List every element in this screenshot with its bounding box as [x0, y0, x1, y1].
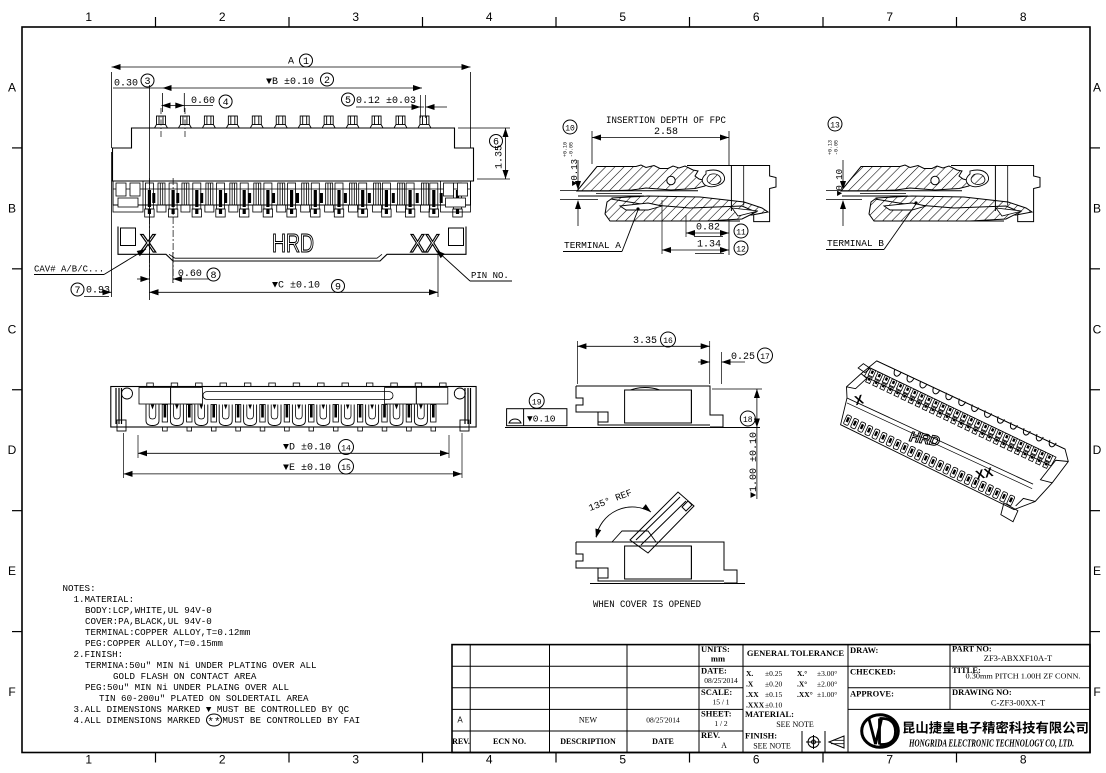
svg-text:2.FINISH:: 2.FINISH:	[74, 649, 124, 660]
svg-text:HONGRIDA ELECTRONIC TECHNOLOGY: HONGRIDA ELECTRONIC TECHNOLOGY CO, LTD.	[908, 739, 1074, 750]
svg-text:-0.05: -0.05	[834, 140, 840, 155]
svg-text:A: A	[1093, 80, 1101, 94]
svg-text:GOLD FLASH ON CONTACT AREA: GOLD FLASH ON CONTACT AREA	[113, 671, 257, 682]
svg-text:9: 9	[335, 283, 341, 294]
svg-text:F: F	[1093, 685, 1100, 699]
svg-text:TERMINAL A: TERMINAL A	[564, 240, 621, 251]
svg-text:▼0.10: ▼0.10	[527, 414, 556, 425]
svg-text:DATE: DATE	[652, 737, 674, 746]
svg-text:D: D	[1093, 443, 1102, 457]
svg-text:0.30mm PITCH 1.00H ZF CONN.: 0.30mm PITCH 1.00H ZF CONN.	[966, 673, 1081, 681]
svg-text:4: 4	[486, 753, 493, 767]
svg-text:5: 5	[345, 96, 351, 107]
svg-text:-0.05: -0.05	[569, 142, 575, 157]
svg-text:APPROVE:: APPROVE:	[850, 689, 894, 699]
svg-text:08/25'2014: 08/25'2014	[646, 716, 680, 725]
svg-text:18: 18	[743, 416, 753, 425]
svg-text:13: 13	[830, 122, 840, 131]
svg-text:1.34: 1.34	[697, 240, 721, 251]
svg-text:0.60: 0.60	[191, 96, 215, 107]
svg-text:D: D	[8, 443, 17, 457]
svg-text:5: 5	[619, 753, 626, 767]
svg-text:±3.00°: ±3.00°	[817, 669, 837, 678]
svg-text:PEG:COPPER ALLOY,T=0.15mm: PEG:COPPER ALLOY,T=0.15mm	[85, 638, 223, 649]
svg-text:0.82: 0.82	[696, 223, 720, 234]
svg-text:REV.: REV.	[701, 730, 720, 740]
svg-text:1.MATERIAL:: 1.MATERIAL:	[74, 594, 135, 605]
svg-text:CAV# A/B/C...: CAV# A/B/C...	[34, 265, 104, 275]
svg-text:▼1.00 ±0.10: ▼1.00 ±0.10	[749, 432, 760, 498]
svg-text:UNITS:: UNITS:	[701, 644, 730, 654]
svg-text:B: B	[1093, 201, 1101, 215]
svg-text:.XX°: .XX°	[797, 690, 813, 699]
svg-text:C-ZF3-00XX-T: C-ZF3-00XX-T	[991, 698, 1046, 708]
svg-text:14: 14	[341, 445, 351, 454]
svg-text:8: 8	[210, 271, 216, 282]
svg-text:6: 6	[753, 10, 760, 24]
svg-text:1.35: 1.35	[495, 145, 506, 169]
svg-text:NOTES:: NOTES:	[63, 583, 96, 594]
svg-text:TERMINAL:COPPER ALLOY,T=0.12mm: TERMINAL:COPPER ALLOY,T=0.12mm	[85, 627, 251, 638]
svg-text:MATERIAL:: MATERIAL:	[745, 709, 794, 719]
svg-text:8: 8	[1020, 10, 1027, 24]
svg-text:HRD: HRD	[272, 228, 314, 258]
svg-text:X.: X.	[746, 669, 753, 678]
svg-text:DATE:: DATE:	[701, 666, 727, 676]
svg-text:0.30: 0.30	[114, 79, 138, 90]
svg-text:ECN NO.: ECN NO.	[493, 737, 526, 746]
svg-text:5: 5	[619, 10, 626, 24]
svg-text:DRAWING NO:: DRAWING NO:	[952, 687, 1012, 697]
svg-text:SEE NOTE: SEE NOTE	[776, 720, 814, 729]
svg-text:C: C	[8, 322, 17, 336]
svg-text:▼E ±0.10: ▼E ±0.10	[283, 463, 331, 474]
svg-text:E: E	[8, 564, 16, 578]
svg-text:.X: .X	[746, 680, 754, 689]
svg-text:BODY:LCP,WHITE,UL 94V-0: BODY:LCP,WHITE,UL 94V-0	[85, 605, 212, 616]
svg-text:0.25: 0.25	[731, 352, 755, 363]
svg-text:ZF3-ABXXF10A-T: ZF3-ABXXF10A-T	[984, 653, 1053, 663]
svg-text:7: 7	[886, 753, 893, 767]
svg-text:▼B ±0.10: ▼B ±0.10	[266, 77, 314, 88]
svg-text:A: A	[457, 716, 463, 725]
svg-text:08/25'2014: 08/25'2014	[704, 676, 738, 685]
svg-text:19: 19	[532, 398, 542, 407]
svg-text:SEE NOTE: SEE NOTE	[753, 742, 791, 751]
svg-text:2.58: 2.58	[654, 127, 678, 138]
svg-text:A: A	[721, 741, 727, 750]
svg-text:3.35: 3.35	[633, 336, 657, 347]
svg-text:TIN 60-200u″ PLATED ON SOLDERT: TIN 60-200u″ PLATED ON SOLDERTAIL AREA	[99, 693, 309, 704]
svg-text:PIN NO.: PIN NO.	[471, 271, 509, 281]
svg-text:WHEN COVER IS OPENED: WHEN COVER IS OPENED	[593, 600, 701, 611]
svg-text:GENERAL TOLERANCE: GENERAL TOLERANCE	[747, 648, 845, 658]
svg-text:10: 10	[565, 125, 575, 134]
svg-text:±1.00°: ±1.00°	[817, 690, 837, 699]
svg-text:7: 7	[74, 286, 80, 297]
svg-text:12: 12	[736, 246, 746, 255]
svg-text:2: 2	[324, 76, 330, 87]
svg-text:▼C ±0.10: ▼C ±0.10	[272, 281, 320, 292]
svg-text:0.12 ±0.03: 0.12 ±0.03	[356, 96, 416, 107]
svg-text:B: B	[8, 201, 16, 215]
svg-text:SCALE:: SCALE:	[701, 687, 732, 697]
svg-text:3: 3	[352, 10, 359, 24]
svg-text:11: 11	[736, 229, 746, 238]
svg-text:4: 4	[223, 98, 229, 109]
svg-text:INSERTION DEPTH OF FPC: INSERTION DEPTH OF FPC	[606, 116, 726, 127]
svg-text:17: 17	[760, 353, 770, 362]
svg-text:2: 2	[219, 10, 226, 24]
svg-text:A: A	[8, 80, 16, 94]
svg-text:4: 4	[486, 10, 493, 24]
svg-text:PEG:50u″ MIN Ni UNDER PLAING O: PEG:50u″ MIN Ni UNDER PLAING OVER ALL	[85, 682, 289, 693]
svg-text:0.60: 0.60	[178, 269, 202, 280]
svg-text:NEW: NEW	[579, 716, 598, 725]
svg-text:.X°: .X°	[797, 680, 807, 689]
svg-text:1: 1	[303, 57, 309, 68]
svg-text:**: **	[207, 717, 220, 729]
svg-text:.XX: .XX	[746, 690, 759, 699]
svg-text:mm: mm	[711, 654, 725, 664]
svg-text:PART NO:: PART NO:	[952, 644, 992, 654]
svg-text:1: 1	[85, 753, 92, 767]
svg-text:15: 15	[341, 464, 351, 473]
svg-text:1 / 2: 1 / 2	[714, 719, 728, 728]
svg-text:1: 1	[85, 10, 92, 24]
svg-text:F: F	[8, 685, 15, 699]
svg-text:FINISH:: FINISH:	[745, 731, 777, 741]
svg-text:DRAW:: DRAW:	[850, 645, 879, 655]
svg-text:X.°: X.°	[797, 669, 807, 678]
svg-text:COVER:PA,BLACK,UL 94V-0: COVER:PA,BLACK,UL 94V-0	[85, 616, 212, 627]
svg-text:±0.20: ±0.20	[765, 680, 782, 689]
svg-text:7: 7	[886, 10, 893, 24]
svg-text:16: 16	[663, 337, 673, 346]
svg-text:±0.15: ±0.15	[765, 690, 782, 699]
svg-text:XX: XX	[410, 230, 440, 258]
svg-text:TERMINAL B: TERMINAL B	[827, 238, 884, 249]
svg-text:3: 3	[352, 753, 359, 767]
svg-text:A: A	[288, 57, 294, 68]
svg-text:SHEET:: SHEET:	[701, 709, 732, 719]
svg-text:DESCRIPTION: DESCRIPTION	[560, 737, 616, 746]
svg-text:6: 6	[753, 753, 760, 767]
svg-text:CHECKED:: CHECKED:	[850, 667, 896, 677]
svg-text:E: E	[1093, 564, 1101, 578]
svg-text:REV.: REV.	[452, 737, 470, 746]
svg-text:8: 8	[1020, 753, 1027, 767]
svg-text:±0.25: ±0.25	[765, 669, 782, 678]
svg-text:2: 2	[219, 753, 226, 767]
svg-text:C: C	[1093, 322, 1102, 336]
svg-text:▼D ±0.10: ▼D ±0.10	[283, 443, 331, 454]
svg-text:3.ALL DIMENSIONS MARKED ▼ MUST: 3.ALL DIMENSIONS MARKED ▼ MUST BE CONTRO…	[74, 704, 350, 715]
svg-text:X: X	[140, 230, 157, 258]
svg-text:15 / 1: 15 / 1	[712, 698, 729, 707]
svg-text:TERMINA:50u″ MIN Ni UNDER PLAT: TERMINA:50u″ MIN Ni UNDER PLATING OVER A…	[85, 660, 317, 671]
svg-text:±2.00°: ±2.00°	[817, 680, 837, 689]
